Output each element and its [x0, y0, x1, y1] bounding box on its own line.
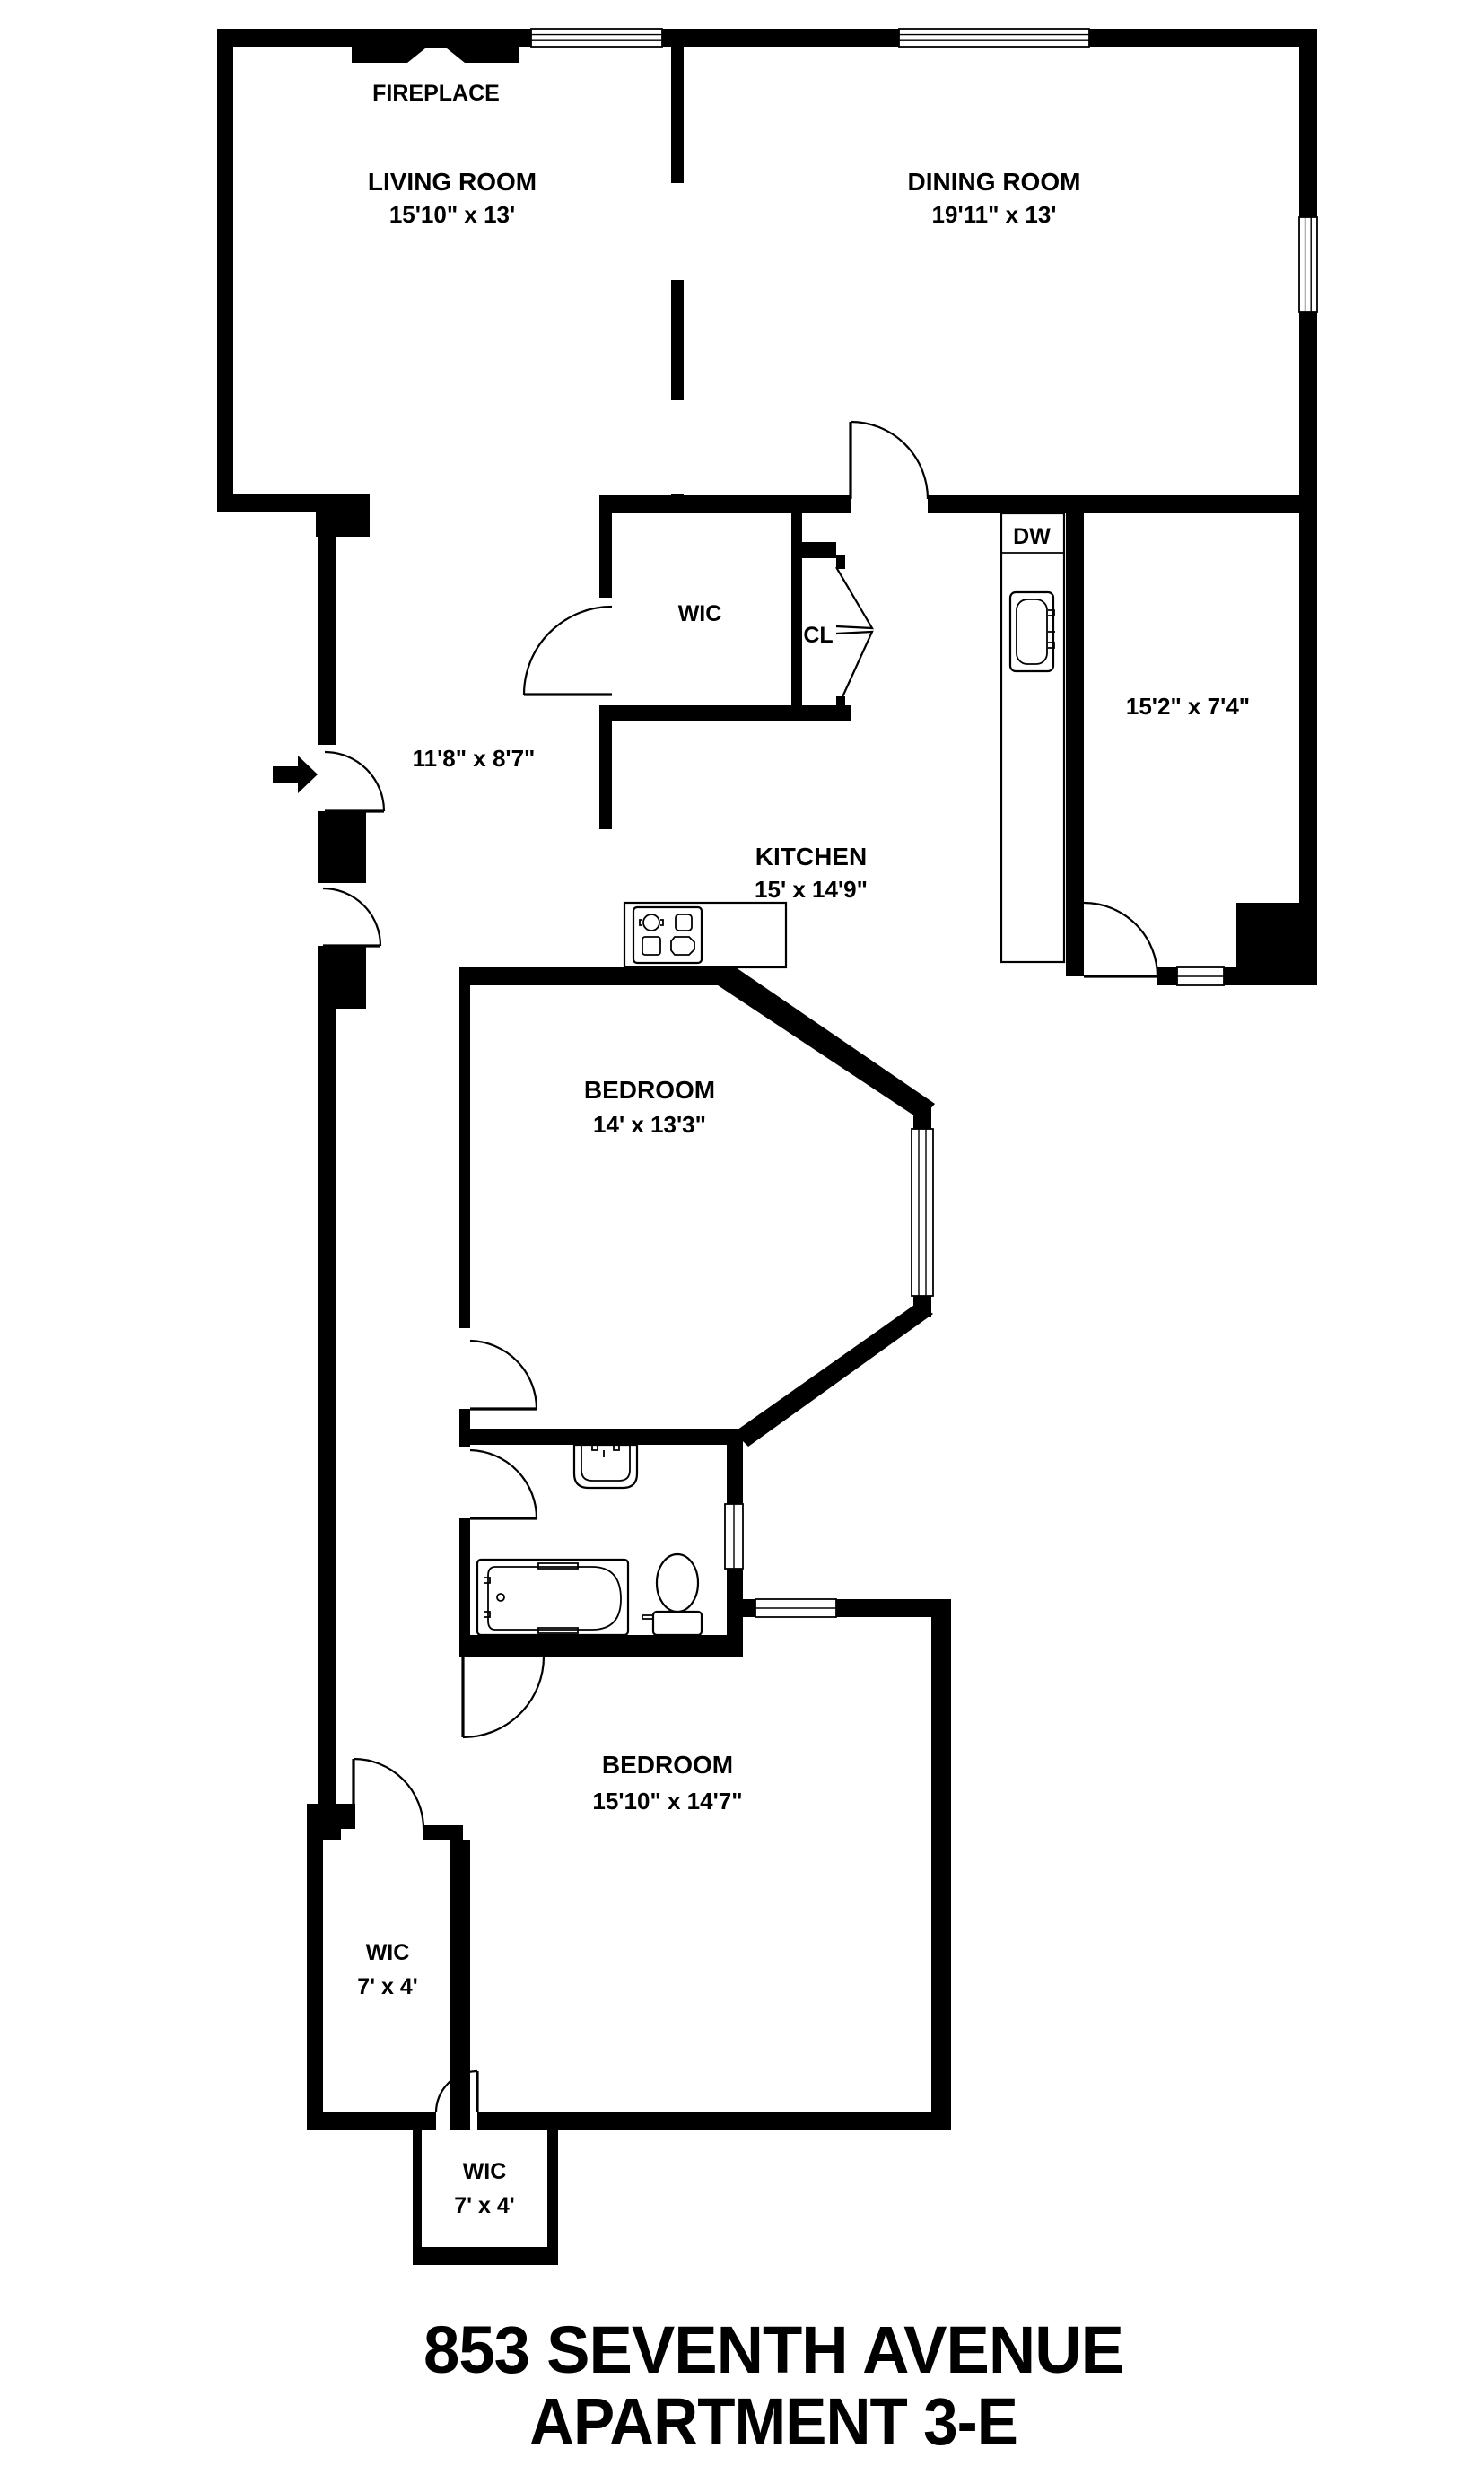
bedroom2-window — [755, 1599, 836, 1617]
room-bedroom1: BEDROOM 14' x 13'3" — [584, 1076, 715, 1138]
windows — [531, 29, 1317, 1617]
bathroom-window — [725, 1504, 743, 1569]
side-room-window — [1177, 967, 1224, 985]
fixtures — [273, 47, 1064, 1635]
wic-top-label: WIC — [678, 601, 722, 626]
bathroom-sink-icon — [574, 1445, 637, 1488]
bedroom2-dims: 15'10" x 14'7" — [592, 1788, 742, 1815]
wic-bottom-label: WIC — [463, 2159, 507, 2184]
entry-door — [325, 752, 384, 811]
floorplan-svg: FIREPLACE LIVING ROOM 15'10" x 13' DININ… — [0, 0, 1484, 2466]
labels: FIREPLACE LIVING ROOM 15'10" x 13' DININ… — [357, 81, 1250, 2459]
dishwasher-label: DW — [1013, 524, 1051, 549]
bathroom-door — [470, 1450, 537, 1518]
wic-left-door — [354, 1759, 423, 1829]
wic-top-door — [524, 607, 612, 695]
dining-kitchen-door — [851, 422, 928, 499]
fireplace-label: FIREPLACE — [372, 81, 500, 106]
walls — [217, 29, 1317, 2265]
room-wic-bottom: WIC 7' x 4' — [454, 2159, 515, 2218]
closet-label: CL — [803, 623, 833, 648]
entry-arrow-icon — [273, 756, 318, 793]
bedroom1-name: BEDROOM — [584, 1076, 715, 1104]
living-room-dims: 15'10" x 13' — [389, 201, 515, 228]
kitchen-sink-icon — [1010, 592, 1055, 671]
title-line2: APARTMENT 3-E — [529, 2384, 1017, 2459]
fireplace — [352, 47, 519, 63]
dining-room-name: DINING ROOM — [908, 168, 1081, 196]
bedroom1-bay-window — [912, 1129, 933, 1296]
dining-room-top-window — [899, 29, 1089, 47]
side-room-dims: 15'2" x 7'4" — [1126, 693, 1250, 720]
kitchen-counter — [1001, 513, 1064, 962]
kitchen-side-room-door — [1084, 903, 1157, 976]
kitchen-dims: 15' x 14'9" — [755, 876, 868, 903]
bedroom2-door — [463, 1657, 544, 1737]
hallway-dims: 11'8" x 8'7" — [413, 745, 536, 772]
wic-left-label: WIC — [366, 1940, 410, 1965]
bedroom2-name: BEDROOM — [602, 1751, 733, 1779]
floorplan-sheet: FIREPLACE LIVING ROOM 15'10" x 13' DININ… — [0, 0, 1484, 2466]
room-wic-left: WIC 7' x 4' — [357, 1940, 418, 1999]
room-dining: DINING ROOM 19'11" x 13' — [908, 168, 1081, 228]
living-room-window — [531, 29, 662, 47]
room-bedroom2: BEDROOM 15'10" x 14'7" — [592, 1751, 742, 1815]
toilet-icon — [642, 1554, 702, 1635]
bedroom1-door — [470, 1341, 537, 1409]
wic-left-dims: 7' x 4' — [357, 1974, 418, 1999]
wic-bottom-dims: 7' x 4' — [454, 2193, 515, 2218]
bedroom1-dims: 14' x 13'3" — [593, 1111, 706, 1138]
kitchen-name: KITCHEN — [755, 843, 867, 870]
dining-room-dims: 19'11" x 13' — [932, 201, 1057, 228]
dining-room-right-window — [1299, 217, 1317, 312]
hall-door — [323, 888, 380, 946]
room-kitchen: KITCHEN 15' x 14'9" — [755, 843, 868, 903]
closet-bifold-doors — [836, 567, 872, 711]
title-line1: 853 SEVENTH AVENUE — [423, 2313, 1123, 2387]
stove-icon — [624, 903, 786, 967]
bathtub-icon — [477, 1560, 628, 1635]
room-living: LIVING ROOM 15'10" x 13' — [368, 168, 537, 228]
living-room-name: LIVING ROOM — [368, 168, 537, 196]
